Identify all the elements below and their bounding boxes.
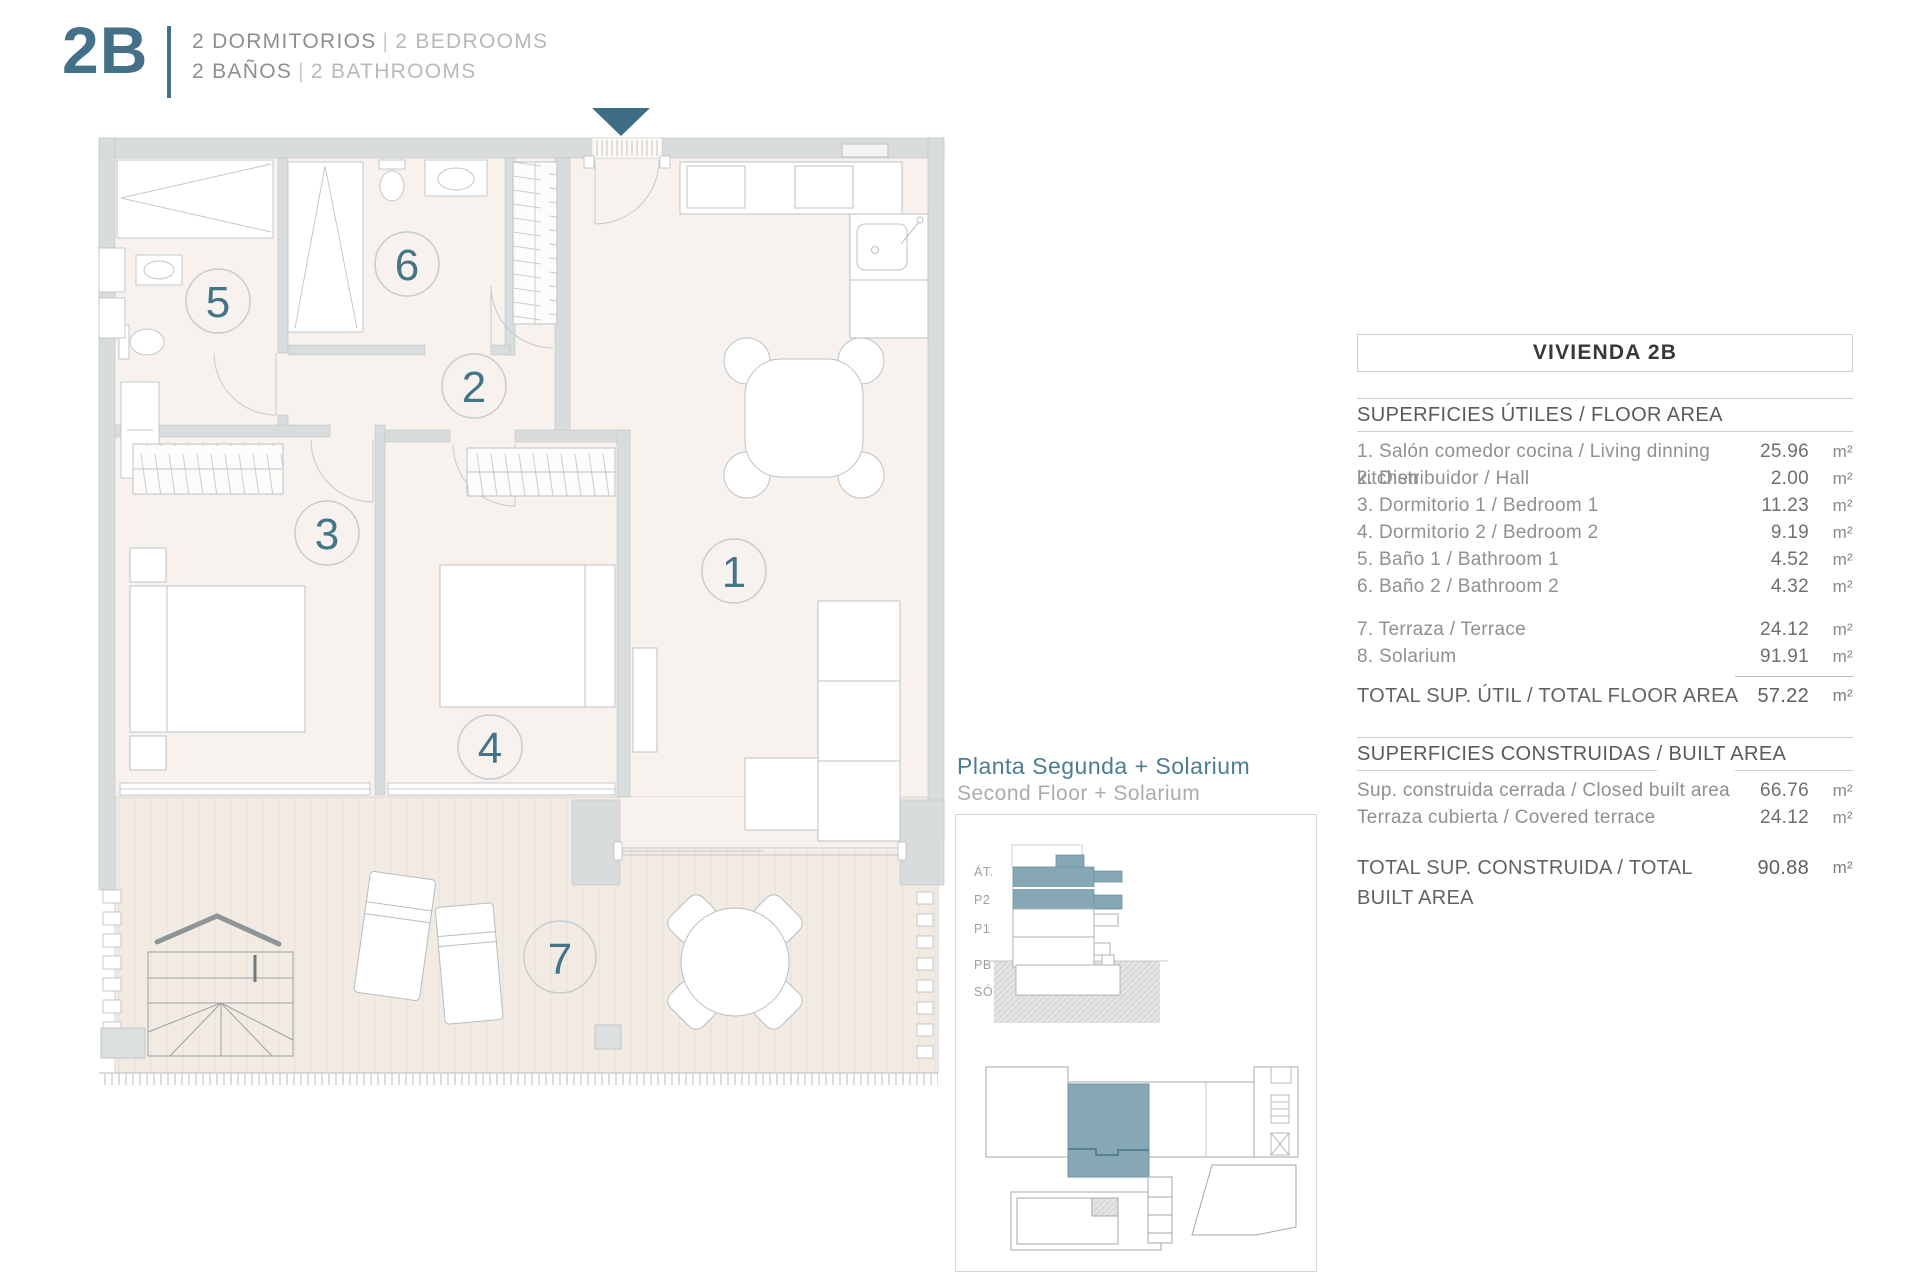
area-row-unit: m² [1809, 438, 1853, 465]
area-row: 2. Distribuidor / Hall2.00m² [1357, 465, 1853, 492]
area-row-unit: m² [1809, 465, 1853, 492]
area-row-label: 3. Dormitorio 1 / Bedroom 1 [1357, 492, 1745, 519]
total-label: TOTAL SUP. CONSTRUIDA / TOTAL BUILT AREA [1357, 853, 1745, 883]
lower-floors [1013, 909, 1120, 995]
appliance [795, 166, 853, 208]
bedrooms-en: 2 BEDROOMS [395, 30, 548, 53]
bedroom-1-furniture [130, 444, 305, 770]
planter [101, 1028, 145, 1058]
area-row-value: 66.76 [1745, 777, 1809, 804]
room-number: 7 [548, 935, 572, 984]
bed [440, 565, 615, 707]
chaise [745, 758, 818, 830]
area-row-value: 11.23 [1745, 492, 1809, 519]
area-row: 8. Solarium91.91m² [1357, 643, 1853, 670]
tv-unit [633, 648, 657, 752]
closet [513, 162, 557, 324]
area-row-unit: m² [1809, 573, 1853, 600]
highlighted-unit [1068, 1084, 1149, 1177]
outdoor-table [681, 908, 789, 1016]
nightstand [130, 548, 166, 582]
floor-plan: 1 2 3 4 5 6 7 [95, 100, 955, 1085]
separator: | [377, 30, 396, 53]
floorplan-sheet: 2B 2 DORMITORIOS|2 BEDROOMS 2 BAÑOS|2 BA… [0, 0, 1920, 1280]
locator-drawing: ÁT. P2 P1 PB SÓT. [956, 815, 1316, 1271]
building-footprint [986, 1067, 1298, 1250]
bathrooms-es: 2 BAÑOS [192, 60, 292, 83]
dining-table [745, 359, 863, 477]
area-row: 5. Baño 1 / Bathroom 14.52m² [1357, 546, 1853, 573]
separator: | [292, 60, 311, 83]
area-row-unit: m² [1809, 643, 1853, 670]
highlighted-floors [1013, 855, 1122, 909]
sink [136, 255, 182, 285]
area-row-label: Sup. construida cerrada / Closed built a… [1357, 777, 1745, 804]
floor-area-header: SUPERFICIES ÚTILES / FLOOR AREA [1357, 398, 1853, 432]
area-row-unit: m² [1809, 492, 1853, 519]
area-row-unit: m² [1809, 546, 1853, 573]
appliance [687, 166, 745, 208]
area-row-label: 5. Baño 1 / Bathroom 1 [1357, 546, 1745, 573]
area-row-value: 24.12 [1745, 616, 1809, 643]
area-row-unit: m² [1809, 519, 1853, 546]
room-number: 3 [315, 510, 339, 559]
area-row-value: 9.19 [1745, 519, 1809, 546]
bathrooms-line: 2 BAÑOS|2 BATHROOMS [192, 60, 477, 84]
area-row: 7. Terraza / Terrace24.12m² [1357, 616, 1853, 643]
total-unit: m² [1809, 853, 1853, 883]
cabinet [850, 280, 928, 338]
area-row-label: Terraza cubierta / Covered terrace [1357, 804, 1745, 831]
toilet [379, 160, 405, 169]
room-number: 4 [478, 724, 502, 773]
sink [425, 160, 487, 196]
total-floor-area-row: TOTAL SUP. ÚTIL / TOTAL FLOOR AREA57.22m… [1357, 681, 1853, 711]
area-row: 1. Salón comedor cocina / Living dinning… [1357, 438, 1853, 465]
hood [842, 144, 888, 157]
bedrooms-line: 2 DORMITORIOS|2 BEDROOMS [192, 30, 548, 54]
area-row-unit: m² [1809, 804, 1853, 831]
built-area-header: SUPERFICIES CONSTRUIDAS / BUILT AREA [1357, 737, 1853, 770]
total-label: TOTAL SUP. ÚTIL / TOTAL FLOOR AREA [1357, 681, 1745, 711]
header-divider [167, 26, 171, 98]
area-row-value: 91.91 [1745, 643, 1809, 670]
locator-panel: ÁT. P2 P1 PB SÓT. [955, 814, 1317, 1272]
total-built-area-row: TOTAL SUP. CONSTRUIDA / TOTAL BUILT AREA… [1357, 853, 1853, 883]
nightstand [130, 736, 166, 770]
area-row-label: 4. Dormitorio 2 / Bedroom 2 [1357, 519, 1745, 546]
spec-title: VIVIENDA 2B [1357, 334, 1853, 372]
planter [595, 1025, 621, 1049]
total-unit: m² [1809, 681, 1853, 711]
dining-set [724, 338, 884, 498]
core-elements [1271, 1067, 1291, 1155]
area-row-value: 25.96 [1745, 438, 1809, 465]
area-row-value: 4.32 [1745, 573, 1809, 600]
level-label: P1 [974, 922, 990, 936]
area-row: 4. Dormitorio 2 / Bedroom 29.19m² [1357, 519, 1853, 546]
total-separator [1735, 676, 1853, 677]
room-number: 5 [206, 278, 230, 327]
area-row-label: 7. Terraza / Terrace [1357, 616, 1745, 643]
unit-code: 2B [62, 12, 148, 88]
pergola-posts-left [103, 890, 121, 1035]
room-number: 2 [462, 363, 486, 412]
bed [130, 586, 305, 732]
outdoor-dining-set [664, 891, 807, 1034]
area-row-value: 2.00 [1745, 465, 1809, 492]
area-row: Terraza cubierta / Covered terrace24.12m… [1357, 804, 1853, 831]
spec-panel: VIVIENDA 2B SUPERFICIES ÚTILES / FLOOR A… [1357, 334, 1853, 883]
area-row-value: 24.12 [1745, 804, 1809, 831]
built-header-underline [1357, 770, 1853, 771]
area-row-label: 2. Distribuidor / Hall [1357, 465, 1745, 492]
room-number: 6 [395, 241, 419, 290]
room-number: 1 [722, 548, 746, 597]
kitchen-sink [857, 224, 907, 270]
level-label: P2 [974, 893, 990, 907]
area-row: 6. Baño 2 / Bathroom 24.32m² [1357, 573, 1853, 600]
bathrooms-en: 2 BATHROOMS [311, 60, 477, 83]
area-row-label: 1. Salón comedor cocina / Living dinning… [1357, 438, 1745, 465]
area-row-value: 4.52 [1745, 546, 1809, 573]
building-section: ÁT. P2 P1 PB SÓT. [974, 845, 1168, 1023]
area-row: Sup. construida cerrada / Closed built a… [1357, 777, 1853, 804]
level-label: PB [974, 958, 992, 972]
level-label: ÁT. [974, 864, 994, 879]
total-value: 57.22 [1745, 681, 1809, 711]
area-row-unit: m² [1809, 777, 1853, 804]
total-value: 90.88 [1745, 853, 1809, 883]
locator-title-es: Planta Segunda + Solarium [957, 753, 1250, 780]
area-row-unit: m² [1809, 616, 1853, 643]
area-row-label: 8. Solarium [1357, 643, 1745, 670]
area-row: 3. Dormitorio 1 / Bedroom 111.23m² [1357, 492, 1853, 519]
pool-terrace [1011, 1165, 1296, 1250]
area-row-label: 6. Baño 2 / Bathroom 2 [1357, 573, 1745, 600]
locator-title-en: Second Floor + Solarium [957, 782, 1200, 806]
shower [117, 160, 273, 238]
bedrooms-es: 2 DORMITORIOS [192, 30, 377, 53]
railing-hatch [99, 1073, 938, 1085]
entrance-arrow-icon [592, 108, 650, 136]
